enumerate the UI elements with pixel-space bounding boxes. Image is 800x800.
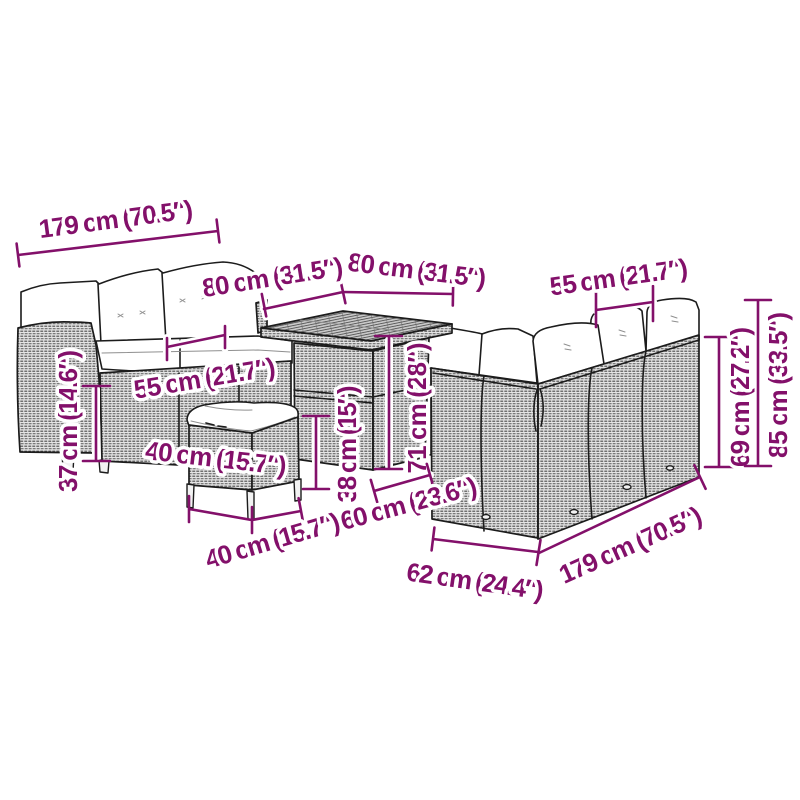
svg-text:38 cm (15″): 38 cm (15″) xyxy=(332,386,362,503)
svg-text:71 cm (28″): 71 cm (28″) xyxy=(402,343,432,474)
svg-text:69 cm (27.2″): 69 cm (27.2″) xyxy=(725,327,755,467)
svg-text:85 cm (33.5″): 85 cm (33.5″) xyxy=(763,312,793,458)
svg-text:37 cm (14.6″): 37 cm (14.6″) xyxy=(53,350,83,492)
